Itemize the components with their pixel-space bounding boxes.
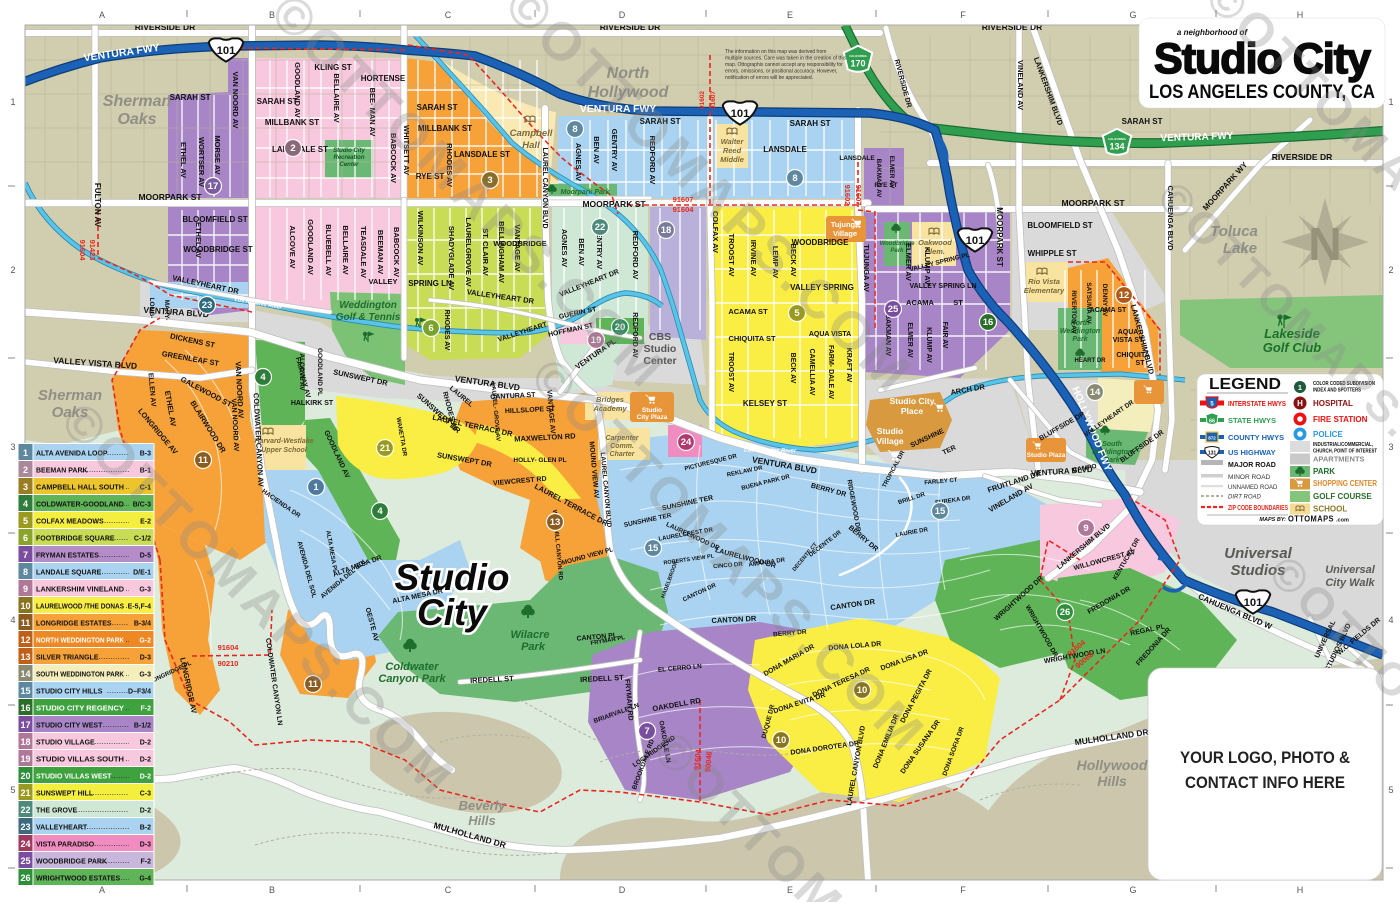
svg-text:SARAH ST: SARAH ST [257,97,298,106]
svg-text:D-2: D-2 [140,773,151,780]
svg-text:BEN AV: BEN AV [592,136,601,164]
svg-text:Place: Place [901,406,923,416]
svg-text:COLDWATER-GOODLAND: COLDWATER-GOODLAND [36,501,124,508]
svg-text:E-5,F-4: E-5,F-4 [128,603,151,610]
svg-text:US HIGHWAY: US HIGHWAY [1228,448,1276,457]
svg-text:26: 26 [1060,607,1071,618]
svg-text:21: 21 [20,788,30,798]
svg-text:D-2: D-2 [140,739,151,746]
svg-text:UNNAMED ROAD: UNNAMED ROAD [1228,485,1278,491]
svg-text:C-1/2: C-1/2 [134,535,151,542]
svg-text:4: 4 [377,506,383,517]
svg-text:8: 8 [23,567,28,577]
svg-text:DIRT ROAD: DIRT ROAD [1228,495,1262,501]
svg-text:MINOR ROAD: MINOR ROAD [1228,474,1271,481]
svg-text:SHOPPING CENTER: SHOPPING CENTER [1313,479,1377,488]
svg-text:G-4: G-4 [139,875,151,882]
svg-text:City: City [417,592,489,633]
svg-text:1: 1 [10,97,15,107]
svg-text:1: 1 [313,482,319,493]
svg-text:8: 8 [792,173,797,184]
svg-text:YOUR LOGO, PHOTO &: YOUR LOGO, PHOTO & [1180,749,1350,767]
svg-text:ACAMA ST: ACAMA ST [1090,307,1127,314]
svg-text:3: 3 [10,442,15,452]
svg-text:ETHEL AV: ETHEL AV [194,222,203,258]
svg-text:Universal: Universal [1325,564,1375,576]
svg-text:WILKINSON AV: WILKINSON AV [416,211,425,266]
svg-text:22: 22 [595,222,606,233]
svg-text:VAN NOORD AV: VAN NOORD AV [231,72,240,129]
svg-text:Hall: Hall [522,140,540,151]
svg-text:CAMELLIA AV: CAMELLIA AV [808,349,815,396]
svg-text:SCHOOL: SCHOOL [1313,505,1347,514]
svg-text:KELSEY ST: KELSEY ST [743,399,787,408]
svg-text:HALKIRK ST: HALKIRK ST [291,400,334,407]
svg-text:15: 15 [935,506,946,517]
svg-text:9: 9 [1083,523,1088,534]
svg-text:5: 5 [1388,785,1393,795]
svg-text:BEEMAN AV: BEEMAN AV [376,230,385,274]
svg-text:23: 23 [20,822,30,832]
svg-text:15: 15 [20,686,30,696]
svg-text:170: 170 [850,59,865,69]
svg-text:2: 2 [290,143,295,154]
svg-text:4: 4 [23,499,28,509]
svg-text:WOODBRIDGE PARK: WOODBRIDGE PARK [36,858,107,865]
svg-text:101: 101 [217,45,236,57]
svg-text:GOODLAND AV: GOODLAND AV [306,219,315,274]
svg-text:ALCOVE AV: ALCOVE AV [298,353,305,391]
svg-text:BABCOCK AV: BABCOCK AV [392,227,401,277]
svg-text:ETHEL AV: ETHEL AV [179,142,188,178]
svg-text:INDUSTRIAL/COMMERCIAL,: INDUSTRIAL/COMMERCIAL, [1313,442,1373,448]
svg-text:25: 25 [888,304,899,315]
svg-text:ALCOVE AV: ALCOVE AV [288,226,297,269]
svg-text:Weddington: Weddington [1060,328,1100,335]
svg-text:101: 101 [1244,597,1263,609]
svg-text:10: 10 [776,735,787,746]
svg-text:Village: Village [876,436,904,446]
svg-text:INTERSTATE HWYS: INTERSTATE HWYS [1228,399,1286,408]
svg-text:D-3: D-3 [140,654,151,661]
svg-text:101: 101 [966,235,985,247]
svg-text:PARK: PARK [1313,467,1335,476]
svg-text:errors, omissions, or position: errors, omissions, or positional accurac… [725,69,837,75]
svg-text:ACAMA: ACAMA [906,298,934,307]
svg-text:Elementary: Elementary [1024,286,1065,295]
svg-text:CALIFORNIA: CALIFORNIA [1108,137,1126,141]
svg-text:SARAH ST: SARAH ST [790,119,831,128]
svg-text:91602: 91602 [699,91,706,109]
svg-text:STATE HWYS: STATE HWYS [1228,416,1276,425]
svg-text:91604: 91604 [78,240,87,262]
svg-text:Hollywood: Hollywood [1077,757,1148,773]
svg-text:.com: .com [1336,518,1349,524]
svg-text:13: 13 [20,652,30,662]
svg-text:4: 4 [260,372,266,383]
svg-text:COUNTY HWYS: COUNTY HWYS [1228,433,1284,442]
svg-text:B: B [269,885,275,895]
svg-text:1: 1 [1298,383,1302,392]
svg-text:E: E [787,10,793,20]
svg-text:26: 26 [20,873,30,883]
svg-text:BELLAIRE AV: BELLAIRE AV [341,225,350,274]
svg-text:5: 5 [10,785,15,795]
svg-text:4: 4 [10,615,15,625]
svg-text:9: 9 [23,584,28,594]
svg-text:OTTOMAPS: OTTOMAPS [1288,515,1334,524]
svg-text:SUNSWEPT HILL: SUNSWEPT HILL [36,790,94,797]
svg-text:B-3/4: B-3/4 [134,620,151,627]
svg-text:11: 11 [198,455,209,466]
svg-text:N: N [1308,218,1341,270]
svg-text:Tujunga: Tujunga [831,220,860,229]
svg-text:Rio Vista: Rio Vista [1028,277,1060,286]
svg-text:SATSUMA AV: SATSUMA AV [1085,282,1092,324]
svg-text:RIVERSIDE DR: RIVERSIDE DR [1272,152,1332,162]
svg-text:GOODLAND PL: GOODLAND PL [316,348,323,396]
svg-text:WHIPPLE ST: WHIPPLE ST [1028,249,1077,258]
svg-text:STUDIO CITY HILLS: STUDIO CITY HILLS [36,688,103,695]
svg-text:SOUTH WEDDINGTON PARK: SOUTH WEDDINGTON PARK [36,671,124,678]
svg-text:multiple sources. Care was tak: multiple sources. Care was taken in the … [725,56,847,62]
svg-text:131: 131 [1208,451,1217,457]
svg-text:MOORPARK ST: MOORPARK ST [995,207,1004,267]
svg-text:G: G [1129,10,1136,20]
svg-text:12: 12 [1119,290,1130,301]
svg-text:RHODES AV: RHODES AV [443,310,450,351]
svg-text:13: 13 [550,517,561,528]
svg-text:1: 1 [1388,97,1393,107]
svg-text:THE GROVE: THE GROVE [36,807,78,814]
svg-text:ELMER AV: ELMER AV [904,243,913,281]
svg-text:14: 14 [20,669,30,679]
svg-text:C-3: C-3 [140,790,151,797]
svg-text:TUJUNGA AV: TUJUNGA AV [862,244,871,292]
svg-text:SARAH ST: SARAH ST [170,93,211,102]
svg-text:17: 17 [208,181,219,192]
svg-text:D/E-1: D/E-1 [133,569,151,576]
svg-text:91423: 91423 [88,240,97,261]
svg-text:Upper School: Upper School [261,447,308,454]
svg-text:18: 18 [20,737,30,747]
svg-text:LANSDALE: LANSDALE [763,145,807,154]
svg-text:Golf & Tennis: Golf & Tennis [336,312,401,323]
svg-text:Hills: Hills [468,813,495,828]
svg-text:D–F3/4: D–F3/4 [128,688,151,695]
svg-text:A: A [99,10,105,20]
svg-text:LANKERSHIM VINELAND: LANKERSHIM VINELAND [36,586,124,593]
svg-text:21: 21 [380,443,391,454]
svg-text:FAIR AV: FAIR AV [941,322,948,349]
svg-text:17: 17 [20,720,30,730]
svg-text:C: C [445,885,452,895]
svg-text:SPRING LN: SPRING LN [408,279,452,288]
svg-text:8: 8 [572,124,577,135]
svg-text:AGNES AV: AGNES AV [574,143,583,181]
svg-text:2: 2 [10,265,15,275]
svg-text:10: 10 [20,601,30,611]
svg-text:16: 16 [983,317,994,328]
svg-text:Center: Center [339,162,359,168]
svg-text:REDFORD AV: REDFORD AV [631,231,640,280]
svg-text:MOORPARK ST: MOORPARK ST [1061,198,1125,208]
svg-text:24: 24 [681,437,692,448]
svg-text:Village: Village [833,229,857,238]
svg-text:3: 3 [23,482,28,492]
svg-text:D-2: D-2 [140,756,151,763]
svg-text:VISTA PARADISO: VISTA PARADISO [36,841,95,848]
svg-text:Los Angeles River: Los Angeles River [744,448,797,455]
svg-text:POLICE: POLICE [1313,430,1343,439]
svg-text:872: 872 [1208,436,1216,441]
svg-text:G-3: G-3 [139,586,151,593]
svg-text:91604: 91604 [218,643,240,652]
svg-text:12: 12 [20,635,30,645]
svg-text:2: 2 [1388,265,1393,275]
svg-text:66: 66 [1209,419,1215,425]
svg-text:Moorpark Park: Moorpark Park [560,189,610,196]
svg-text:AQUA: AQUA [1118,329,1139,336]
svg-text:B-2: B-2 [140,824,151,831]
svg-text:Oaks: Oaks [117,111,156,128]
svg-text:5: 5 [23,516,28,526]
svg-text:F: F [960,885,966,895]
svg-text:STUDIO CITY REGENCY: STUDIO CITY REGENCY [36,705,124,712]
svg-text:MILLBANK ST: MILLBANK ST [265,118,319,127]
svg-text:6: 6 [23,533,28,543]
svg-text:VALLEY SPRING LN: VALLEY SPRING LN [909,283,976,290]
svg-text:SHADYGLADE AV: SHADYGLADE AV [447,226,456,290]
svg-text:Studio City: Studio City [890,396,935,406]
svg-text:Park: Park [1072,336,1088,343]
svg-text:91602: 91602 [843,185,852,206]
svg-text:6: 6 [428,323,433,334]
svg-text:VALLEYHEART: VALLEYHEART [36,824,88,831]
svg-text:F-2: F-2 [141,858,152,865]
svg-text:Studio City: Studio City [333,148,365,154]
svg-text:KLUMP AV: KLUMP AV [925,327,932,363]
svg-text:FULTON AV: FULTON AV [93,183,102,228]
svg-text:Sherman: Sherman [103,93,172,110]
svg-text:STUDIO VILLAS SOUTH: STUDIO VILLAS SOUTH [36,756,124,763]
svg-text:HEART DR: HEART DR [1075,358,1107,364]
svg-text:D-3: D-3 [140,841,151,848]
svg-text:Walter: Walter [721,137,745,146]
svg-text:Reed: Reed [723,146,742,155]
svg-text:LANSDALE: LANSDALE [839,155,875,162]
svg-text:MOORPARK ST: MOORPARK ST [138,192,202,202]
svg-text:notification of errors will be: notification of errors will be appreciat… [725,75,813,81]
svg-text:F: F [960,10,966,20]
svg-text:CONTACT INFO HERE: CONTACT INFO HERE [1185,774,1345,792]
svg-text:90210: 90210 [218,659,239,668]
svg-text:A: A [99,885,105,895]
svg-text:101: 101 [731,108,750,120]
svg-text:VALLEY: VALLEY [368,277,397,286]
svg-text:Park: Park [890,248,904,254]
svg-text:D-2: D-2 [140,807,151,814]
svg-text:D: D [619,10,626,20]
svg-text:MAJOR ROAD: MAJOR ROAD [1228,462,1276,469]
svg-text:LAURELWOOD /THE DONAS: LAURELWOOD /THE DONAS [36,603,124,610]
svg-text:APARTMENTS: APARTMENTS [1313,455,1365,464]
svg-text:24: 24 [20,839,30,849]
svg-text:MORSE AV: MORSE AV [213,135,222,174]
svg-text:14: 14 [1090,387,1101,398]
svg-text:Studio Plaza: Studio Plaza [1027,452,1066,459]
svg-text:19: 19 [20,754,30,764]
svg-text:FOOTBRIDGE SQUARE: FOOTBRIDGE SQUARE [36,535,115,542]
svg-text:D-5: D-5 [140,552,151,559]
svg-text:22: 22 [20,805,30,815]
svg-text:2: 2 [23,465,28,475]
svg-text:CHIQUITA ST: CHIQUITA ST [728,334,775,343]
svg-text:ACAMA ST: ACAMA ST [728,307,768,316]
svg-text:TEASDALE AV: TEASDALE AV [359,226,368,278]
svg-text:The information on this map wa: The information on this map was derived … [725,49,826,55]
svg-text:MAPS BY:: MAPS BY: [1259,517,1286,523]
svg-text:LEGEND: LEGEND [1209,376,1281,393]
svg-text:map. Ottographix cannot accept: map. Ottographix cannot accept any respo… [725,62,843,68]
svg-text:Oakwood: Oakwood [918,238,952,247]
svg-text:SILVER TRIANGLE: SILVER TRIANGLE [36,654,99,661]
svg-text:23: 23 [202,300,213,311]
svg-text:LONGRIDGE ESTATES: LONGRIDGE ESTATES [36,620,112,627]
svg-text:C: C [445,10,452,20]
svg-text:BEEMAN PARK: BEEMAN PARK [36,467,88,474]
svg-text:BECK AV: BECK AV [789,353,796,384]
svg-text:TROOST AV: TROOST AV [727,352,734,392]
svg-text:G: G [1129,885,1136,895]
svg-text:RIVERTON AV: RIVERTON AV [1070,290,1077,334]
svg-text:STUDIO VILLAS WEST: STUDIO VILLAS WEST [36,773,112,780]
svg-text:NORTH WEDDINGTON PARK: NORTH WEDDINGTON PARK [36,637,124,644]
svg-text:D: D [619,885,626,895]
svg-text:SARAH ST: SARAH ST [1122,117,1163,126]
svg-text:WOODBRIDGE ST: WOODBRIDGE ST [183,245,252,254]
svg-text:4: 4 [1388,615,1393,625]
svg-text:Canyon Park: Canyon Park [378,673,446,685]
svg-text:18: 18 [661,225,672,236]
svg-text:B-1/2: B-1/2 [134,722,151,729]
svg-text:7: 7 [644,726,649,737]
svg-text:BAKMAN AV: BAKMAN AV [875,159,882,199]
svg-text:ELMER AV: ELMER AV [888,156,895,190]
svg-text:15: 15 [648,543,659,554]
svg-text:1: 1 [23,448,28,458]
svg-text:CALIFORNIA: CALIFORNIA [849,54,867,58]
svg-text:Coldwater: Coldwater [385,661,439,673]
svg-text:BLUEBELL AV: BLUEBELL AV [324,224,333,276]
svg-text:G-2: G-2 [139,637,151,644]
svg-text:VINELAND AV: VINELAND AV [1016,60,1025,110]
svg-text:MOORPARK ST: MOORPARK ST [582,199,646,209]
svg-text:ZIP CODE BOUNDARIES: ZIP CODE BOUNDARIES [1228,505,1288,512]
svg-text:20: 20 [20,771,30,781]
svg-text:11: 11 [21,618,31,628]
svg-text:GOLF COURSE: GOLF COURSE [1313,492,1372,501]
svg-text:H: H [1297,885,1304,895]
svg-text:G-3: G-3 [139,671,151,678]
svg-text:WRIGHTWOOD ESTATES: WRIGHTWOOD ESTATES [36,875,120,882]
svg-text:Park: Park [521,641,546,653]
svg-text:Weddington: Weddington [339,300,397,311]
svg-text:LANDALE SQUARE: LANDALE SQUARE [36,569,102,576]
svg-text:FRYMAN ESTATES: FRYMAN ESTATES [36,552,99,559]
svg-text:25: 25 [20,856,30,866]
svg-text:16: 16 [20,703,30,713]
svg-text:7: 7 [23,550,28,560]
svg-text:WORTSER AV: WORTSER AV [197,137,206,187]
svg-text:BLOOMFIELD ST: BLOOMFIELD ST [1027,221,1092,230]
svg-text:Campbell: Campbell [510,128,553,139]
svg-text:Recreation: Recreation [333,155,364,161]
svg-text:Hills: Hills [1097,773,1127,789]
svg-text:H: H [1297,399,1303,408]
svg-text:Beverly: Beverly [459,798,507,813]
svg-text:GOODLAND AV: GOODLAND AV [293,62,302,117]
svg-text:Studio: Studio [642,407,662,414]
svg-text:LAUREL CANYON BLVD: LAUREL CANYON BLVD [541,147,548,228]
svg-text:134: 134 [1109,142,1124,152]
svg-text:Studio: Studio [877,426,903,436]
svg-text:STUDIO VILLAGE: STUDIO VILLAGE [36,739,95,746]
svg-text:F-2: F-2 [141,705,152,712]
svg-text:COLFAX MEADOWS: COLFAX MEADOWS [36,518,104,525]
svg-text:91607: 91607 [710,91,717,109]
svg-text:91607: 91607 [854,185,863,206]
svg-text:Wilacre: Wilacre [510,629,549,641]
svg-text:STUDIO CITY WEST: STUDIO CITY WEST [36,722,103,729]
svg-text:ST: ST [953,298,963,307]
svg-text:BLOOMFIELD ST: BLOOMFIELD ST [182,215,247,224]
svg-text:HOLLY- GLEN PL: HOLLY- GLEN PL [513,457,566,464]
svg-text:City Plaza: City Plaza [637,414,668,421]
